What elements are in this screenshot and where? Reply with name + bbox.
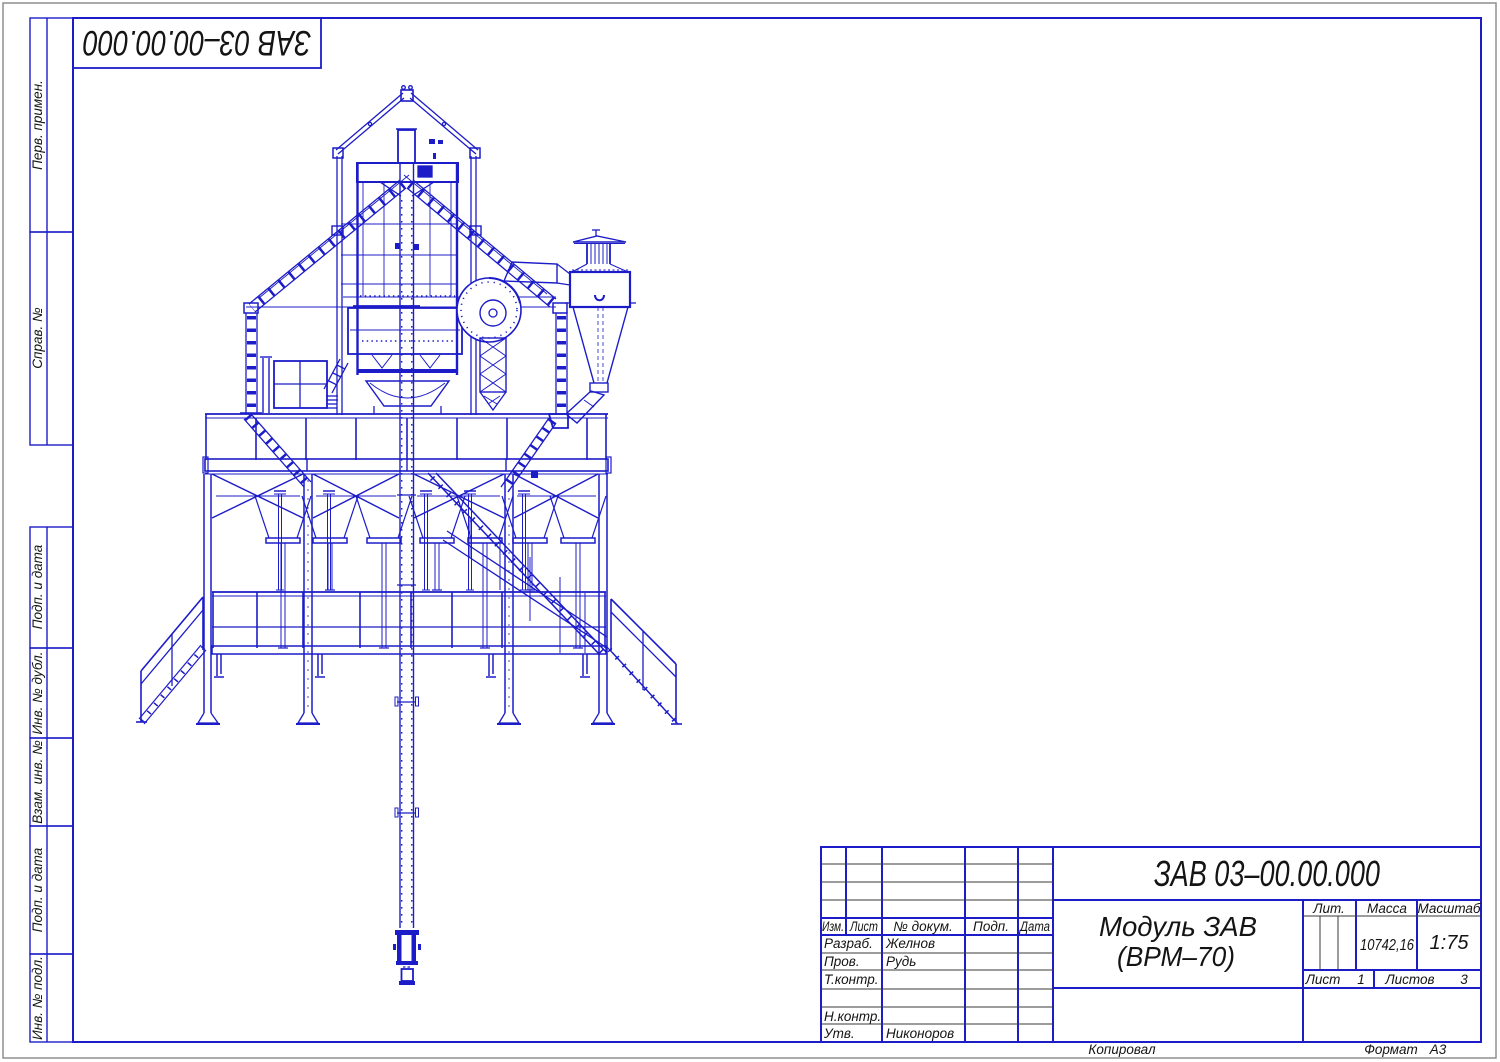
svg-text:Масштаб: Масштаб xyxy=(1417,901,1480,916)
svg-text:Н.контр.: Н.контр. xyxy=(824,1009,881,1024)
svg-text:Копировал: Копировал xyxy=(1088,1042,1156,1057)
svg-text:1:75: 1:75 xyxy=(1430,932,1470,954)
svg-text:Т.контр.: Т.контр. xyxy=(824,972,878,987)
svg-text:Листов: Листов xyxy=(1384,972,1434,987)
svg-text:Желнов: Желнов xyxy=(885,936,935,951)
svg-text:Рудь: Рудь xyxy=(886,954,916,969)
svg-text:Лист: Лист xyxy=(1305,972,1341,987)
svg-text:ЗАВ 03–00.00.000: ЗАВ 03–00.00.000 xyxy=(1154,853,1380,894)
svg-text:Никоноров: Никоноров xyxy=(886,1026,954,1041)
svg-text:Утв.: Утв. xyxy=(823,1026,855,1041)
svg-text:Справ. №: Справ. № xyxy=(30,307,45,369)
svg-text:А3: А3 xyxy=(1429,1042,1447,1057)
svg-text:ЗАВ 03–00.00.000: ЗАВ 03–00.00.000 xyxy=(83,23,311,62)
svg-text:Дата: Дата xyxy=(1018,919,1050,934)
svg-text:Подп. и дата: Подп. и дата xyxy=(30,847,45,932)
svg-text:Масса: Масса xyxy=(1367,901,1407,916)
svg-text:3: 3 xyxy=(1460,972,1468,987)
svg-text:Разраб.: Разраб. xyxy=(824,936,873,951)
svg-text:Изм.: Изм. xyxy=(822,919,844,934)
svg-text:Инв. № подл.: Инв. № подл. xyxy=(30,956,45,1040)
svg-text:Перв. примен.: Перв. примен. xyxy=(30,80,45,170)
svg-text:Формат: Формат xyxy=(1364,1042,1418,1057)
svg-text:Взам. инв. №: Взам. инв. № xyxy=(30,740,45,824)
svg-text:Лит.: Лит. xyxy=(1312,901,1345,916)
svg-text:(ВРМ–70): (ВРМ–70) xyxy=(1117,941,1235,972)
svg-text:Подп.: Подп. xyxy=(973,919,1009,934)
svg-text:Модуль ЗАВ: Модуль ЗАВ xyxy=(1099,911,1257,942)
svg-text:№ докум.: № докум. xyxy=(893,919,952,934)
svg-text:Инв. № дубл.: Инв. № дубл. xyxy=(30,651,45,734)
svg-text:Пров.: Пров. xyxy=(824,954,860,969)
svg-text:10742,16: 10742,16 xyxy=(1360,937,1414,954)
svg-text:Подп. и дата: Подп. и дата xyxy=(30,544,45,629)
svg-text:1: 1 xyxy=(1357,972,1365,987)
svg-text:Лист: Лист xyxy=(849,919,878,934)
